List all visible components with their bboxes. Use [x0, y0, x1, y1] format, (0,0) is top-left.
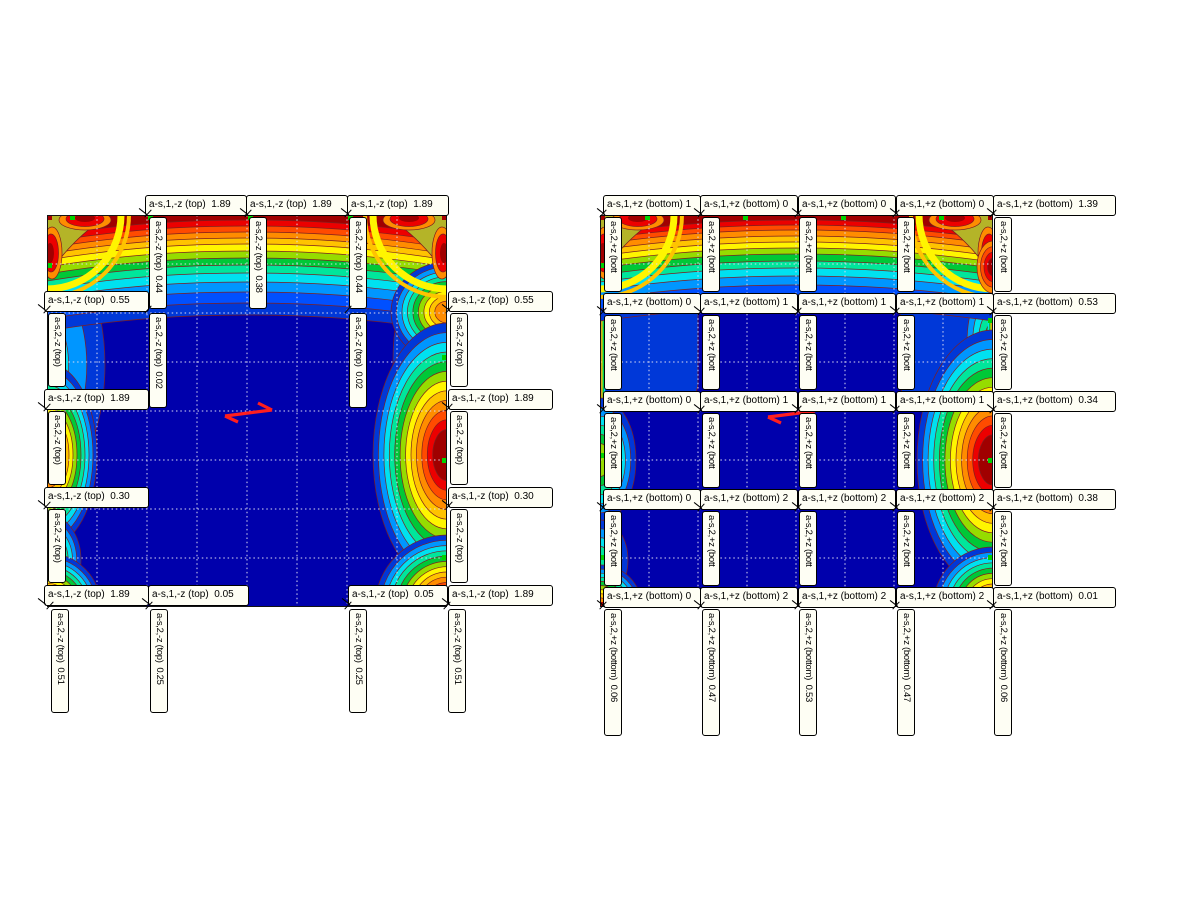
value-callout: a-s,1,+z (bottom) 0.34	[993, 391, 1116, 412]
value-callout: a-s,1,+z (bottom) 2	[798, 489, 896, 510]
value-callout-vertical: a-s,2,-z (top) 0.25	[150, 609, 168, 713]
value-callout-vertical: a-s,2,-z (top)	[450, 313, 468, 387]
value-callout-vertical: a-s,2,+z (bott	[994, 217, 1012, 292]
value-callout-vertical: a-s,2,-z (top) 0.51	[448, 609, 466, 713]
value-callout-vertical: a-s,2,+z (bott	[604, 413, 622, 488]
value-callout-vertical: a-s,2,-z (top)	[48, 411, 66, 485]
value-callout-vertical: a-s,2,+z (bott	[702, 217, 720, 292]
value-callout: a-s,1,+z (bottom) 0	[700, 195, 798, 216]
value-callout-vertical: a-s,2,-z (top) 0.38	[249, 217, 267, 309]
value-callout-vertical: a-s,2,+z (bottom) 0.53	[799, 609, 817, 736]
value-callout-vertical: a-s,2,-z (top) 0.51	[51, 609, 69, 713]
value-callout: a-s,1,-z (top) 1.89	[246, 195, 348, 216]
value-callout: a-s,1,+z (bottom) 1	[700, 391, 798, 412]
value-callout: a-s,1,+z (bottom) 0	[603, 293, 701, 314]
value-callout: a-s,1,+z (bottom) 2	[896, 489, 994, 510]
value-callout-vertical: a-s,2,+z (bott	[799, 217, 817, 292]
value-callout: a-s,1,+z (bottom) 2	[700, 489, 798, 510]
value-callout: a-s,1,+z (bottom) 1.39	[993, 195, 1116, 216]
value-callout-vertical: a-s,2,-z (top)	[450, 509, 468, 583]
value-callout-vertical: a-s,2,+z (bottom) 0.06	[994, 609, 1012, 736]
value-callout: a-s,1,+z (bottom) 0.38	[993, 489, 1116, 510]
value-callout: a-s,1,-z (top) 0.30	[448, 487, 553, 508]
value-callout: a-s,1,+z (bottom) 1	[896, 391, 994, 412]
value-callout-vertical: a-s,2,+z (bott	[702, 413, 720, 488]
value-callout-vertical: a-s,2,+z (bott	[702, 315, 720, 390]
value-callout: a-s,1,-z (top) 0.55	[448, 291, 553, 312]
value-callout: a-s,1,+z (bottom) 1	[603, 195, 701, 216]
value-callout-vertical: a-s,2,+z (bottom) 0.06	[604, 609, 622, 736]
value-callout: a-s,1,-z (top) 1.89	[44, 585, 149, 606]
value-callout-vertical: a-s,2,-z (top)	[48, 313, 66, 387]
value-callout-vertical: a-s,2,+z (bott	[994, 413, 1012, 488]
value-callout-vertical: a-s,2,+z (bott	[799, 413, 817, 488]
value-callout-vertical: a-s,2,+z (bott	[604, 315, 622, 390]
value-callout-vertical: a-s,2,+z (bottom) 0.47	[897, 609, 915, 736]
value-callout: a-s,1,-z (top) 0.55	[44, 291, 149, 312]
value-callout-vertical: a-s,2,+z (bott	[799, 315, 817, 390]
value-callout-vertical: a-s,2,+z (bott	[897, 217, 915, 292]
value-callout-vertical: a-s,2,+z (bott	[604, 217, 622, 292]
value-callout: a-s,1,-z (top) 0.05	[148, 585, 249, 606]
value-callout-vertical: a-s,2,-z (top) 0.02	[149, 313, 167, 408]
value-callout: a-s,1,+z (bottom) 2	[798, 587, 896, 608]
value-callout: a-s,1,+z (bottom) 2	[896, 587, 994, 608]
value-callout-vertical: a-s,2,-z (top)	[48, 509, 66, 583]
value-callout-vertical: a-s,2,-z (top) 0.44	[149, 217, 167, 309]
value-callout: a-s,1,+z (bottom) 0.53	[993, 293, 1116, 314]
value-callout-vertical: a-s,2,+z (bott	[702, 511, 720, 586]
left-contour-plot-top-reinforcement[interactable]	[47, 215, 447, 607]
value-callout: a-s,1,-z (top) 0.05	[348, 585, 448, 606]
value-callout: a-s,1,+z (bottom) 1	[798, 391, 896, 412]
value-callout: a-s,1,-z (top) 1.89	[448, 389, 553, 410]
value-callout-vertical: a-s,2,+z (bott	[897, 315, 915, 390]
value-callout-vertical: a-s,2,-z (top) 0.44	[349, 217, 367, 309]
value-callout: a-s,1,-z (top) 1.89	[44, 389, 149, 410]
value-callout-vertical: a-s,2,+z (bott	[897, 511, 915, 586]
fem-results-canvas[interactable]: a-s,1,-z (top) 1.89a-s,1,-z (top) 1.89a-…	[0, 0, 1200, 900]
value-callout-vertical: a-s,2,+z (bott	[994, 511, 1012, 586]
value-callout: a-s,1,-z (top) 0.30	[44, 487, 149, 508]
value-callout-vertical: a-s,2,+z (bott	[604, 511, 622, 586]
value-callout: a-s,1,+z (bottom) 1	[798, 293, 896, 314]
value-callout: a-s,1,+z (bottom) 1	[896, 293, 994, 314]
value-callout: a-s,1,+z (bottom) 0	[896, 195, 994, 216]
value-callout: a-s,1,+z (bottom) 1	[700, 293, 798, 314]
value-callout-vertical: a-s,2,+z (bott	[994, 315, 1012, 390]
value-callout: a-s,1,+z (bottom) 0	[798, 195, 896, 216]
value-callout: a-s,1,+z (bottom) 0	[603, 489, 701, 510]
value-callout: a-s,1,+z (bottom) 0	[603, 587, 701, 608]
value-callout-vertical: a-s,2,-z (top) 0.25	[349, 609, 367, 713]
value-callout: a-s,1,+z (bottom) 0	[603, 391, 701, 412]
value-callout-vertical: a-s,2,+z (bottom) 0.47	[702, 609, 720, 736]
value-callout-vertical: a-s,2,-z (top)	[450, 411, 468, 485]
value-callout: a-s,1,+z (bottom) 0.01	[993, 587, 1116, 608]
value-callout: a-s,1,-z (top) 1.89	[145, 195, 247, 216]
value-callout-vertical: a-s,2,+z (bott	[799, 511, 817, 586]
value-callout: a-s,1,-z (top) 1.89	[448, 585, 553, 606]
value-callout: a-s,1,-z (top) 1.89	[347, 195, 449, 216]
value-callout: a-s,1,+z (bottom) 2	[700, 587, 798, 608]
value-callout-vertical: a-s,2,-z (top) 0.02	[349, 313, 367, 408]
value-callout-vertical: a-s,2,+z (bott	[897, 413, 915, 488]
